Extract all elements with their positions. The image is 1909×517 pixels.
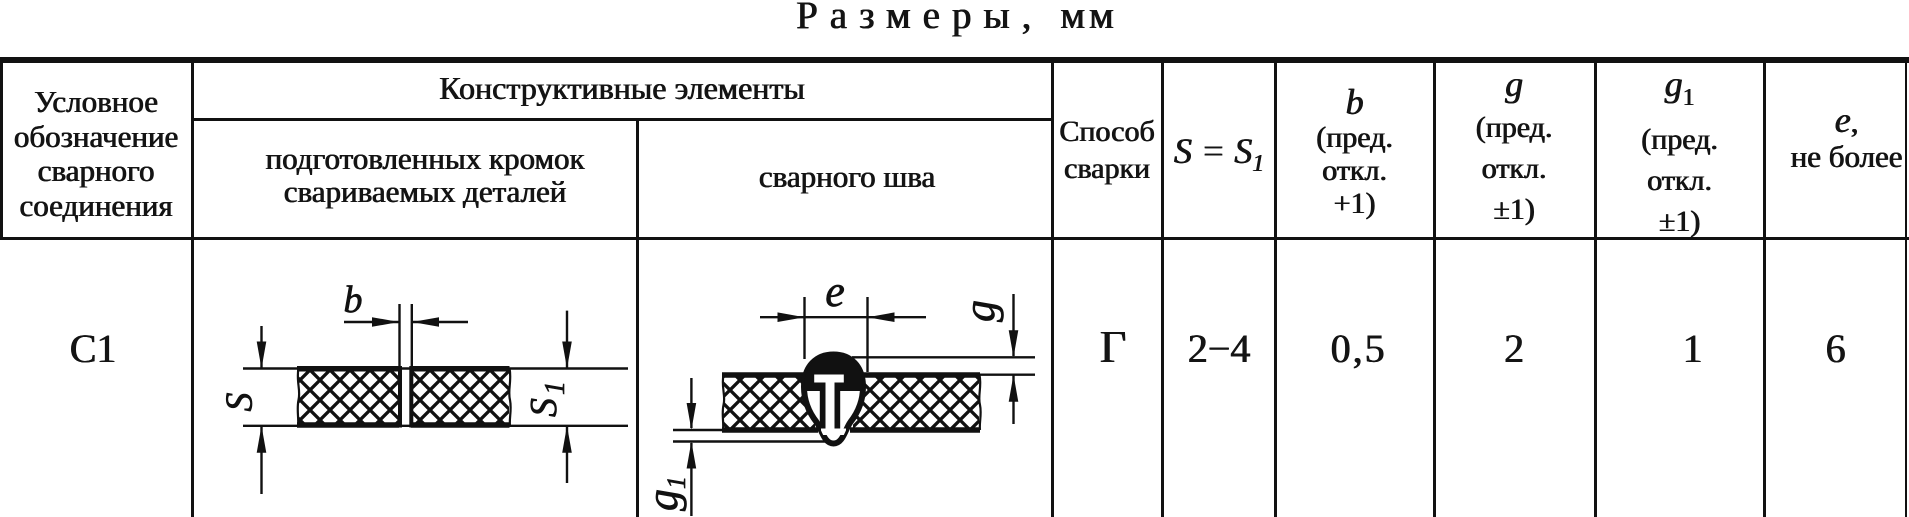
svg-text:g1: g1 — [638, 476, 691, 511]
svg-text:e: e — [825, 267, 845, 316]
svg-text:S1: S1 — [523, 381, 571, 417]
svg-text:S: S — [219, 393, 261, 412]
svg-text:g: g — [955, 300, 1004, 322]
svg-text:b: b — [344, 279, 363, 321]
